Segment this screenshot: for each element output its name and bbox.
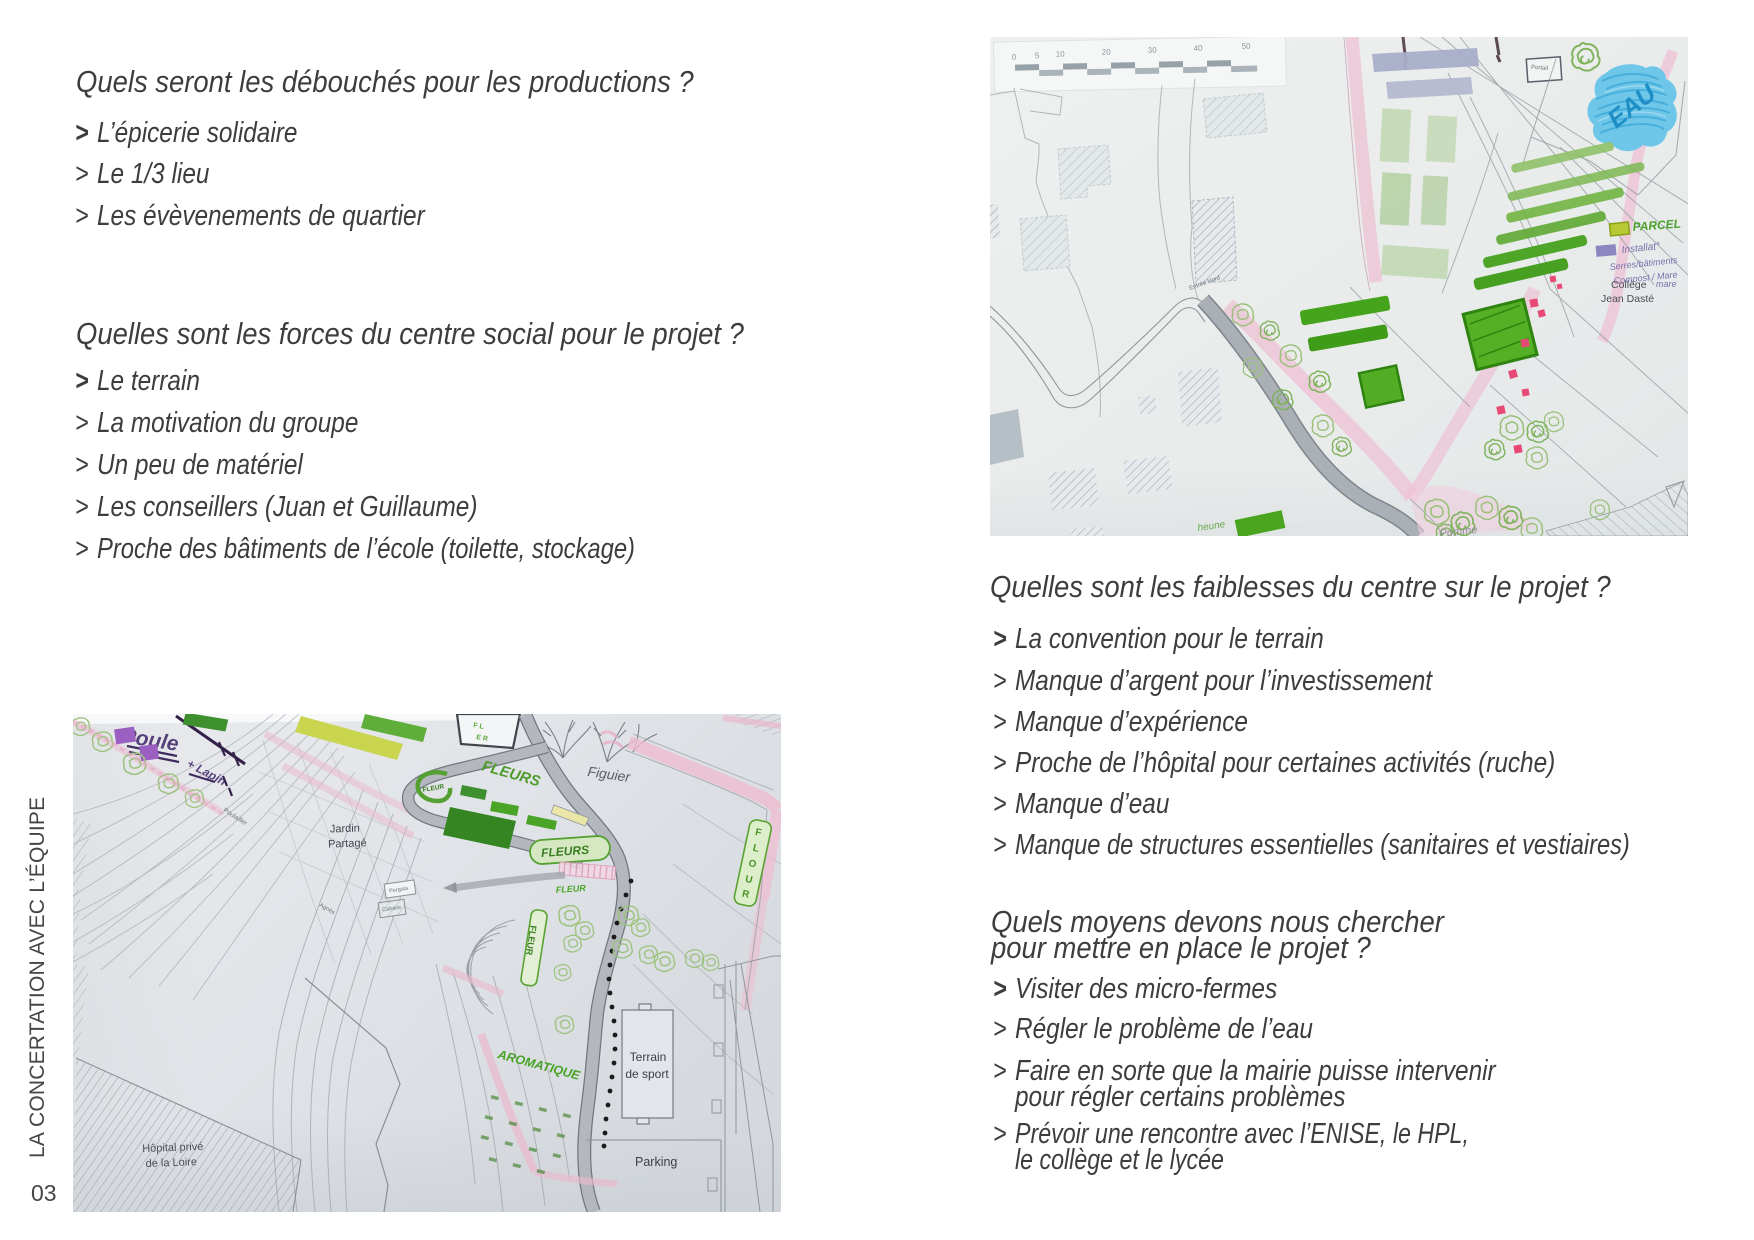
svg-text:Collège: Collège xyxy=(1611,279,1647,291)
svg-text:Jardin: Jardin xyxy=(330,822,360,835)
svg-text:Parking: Parking xyxy=(635,1155,677,1169)
svg-text:Terrain: Terrain xyxy=(630,1050,667,1064)
svg-text:10: 10 xyxy=(1056,50,1066,59)
svg-text:20: 20 xyxy=(1102,48,1112,57)
svg-text:Hôpital privé: Hôpital privé xyxy=(142,1141,204,1155)
svg-text:40: 40 xyxy=(1194,44,1204,53)
svg-text:0: 0 xyxy=(1012,53,1017,62)
svg-text:de la Loire: de la Loire xyxy=(145,1156,197,1170)
svg-text:FLEUR: FLEUR xyxy=(555,883,586,895)
svg-text:30: 30 xyxy=(1148,46,1158,55)
svg-text:50: 50 xyxy=(1242,42,1252,51)
svg-text:Portail: Portail xyxy=(1531,65,1548,72)
svg-text:5: 5 xyxy=(1035,51,1040,60)
svg-text:Jean Dasté: Jean Dasté xyxy=(1601,293,1654,305)
svg-text:de sport: de sport xyxy=(625,1067,669,1081)
svg-text:mare: mare xyxy=(1656,279,1677,289)
svg-text:Partagé: Partagé xyxy=(328,837,367,850)
